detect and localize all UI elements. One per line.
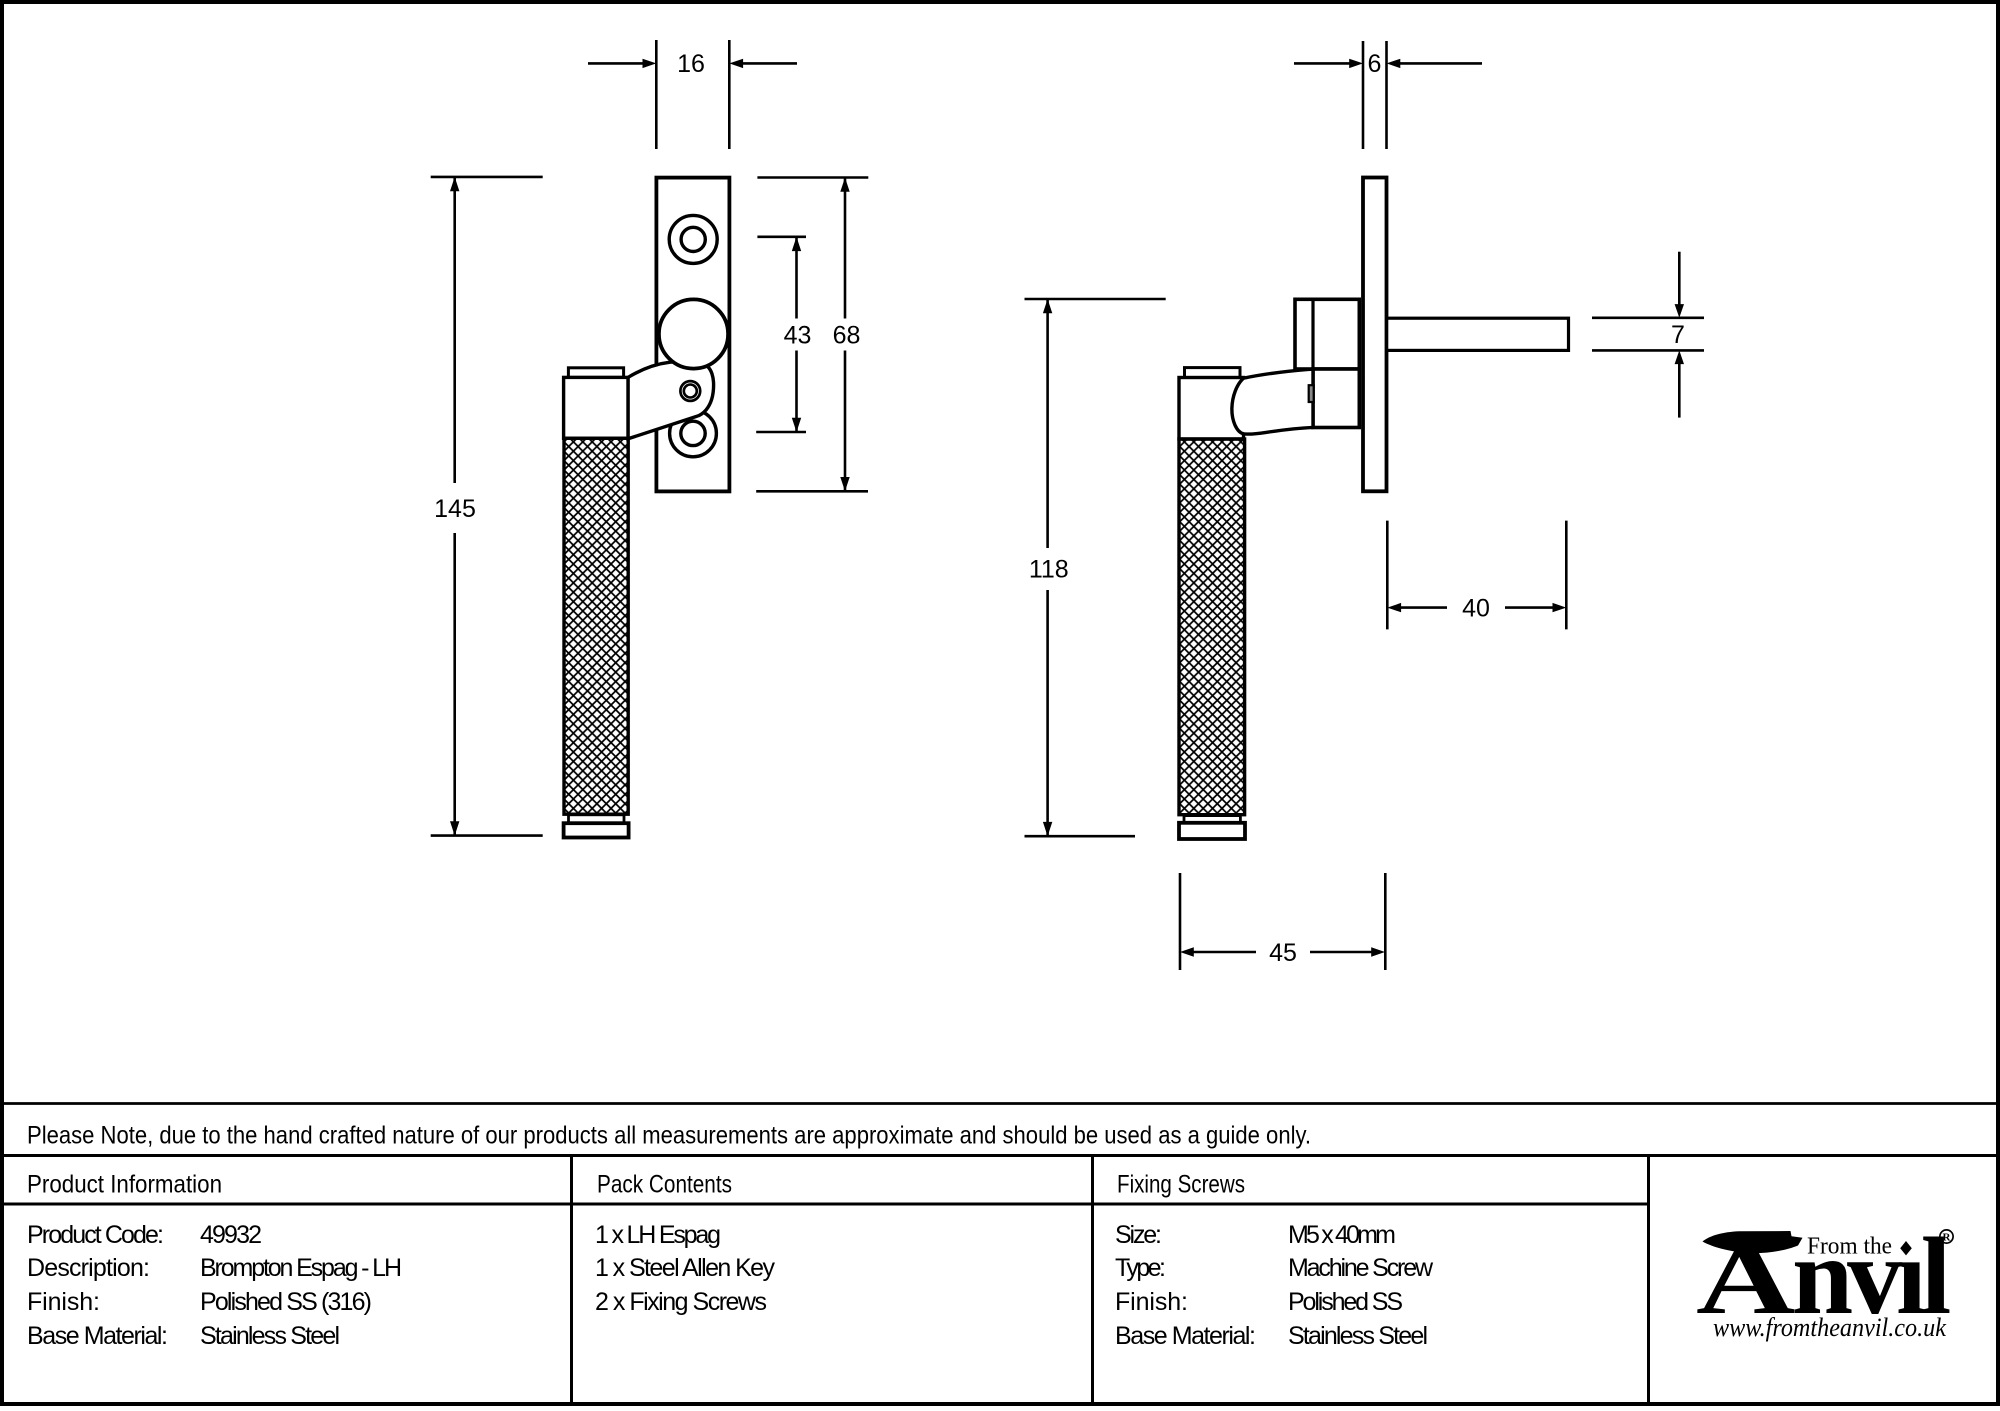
svg-text:2 x Fixing Screws: 2 x Fixing Screws	[595, 1288, 767, 1316]
svg-text:Description:: Description:	[27, 1254, 150, 1282]
svg-text:16: 16	[677, 50, 705, 78]
svg-text:Product Code:: Product Code:	[27, 1221, 164, 1249]
svg-text:Stainless Steel: Stainless Steel	[1288, 1322, 1428, 1350]
svg-text:www.fromtheanvil.co.uk: www.fromtheanvil.co.uk	[1713, 1313, 1946, 1342]
svg-text:Please Note, due to the hand c: Please Note, due to the hand crafted nat…	[27, 1122, 1311, 1150]
svg-text:45: 45	[1269, 939, 1297, 967]
svg-text:Base Material:: Base Material:	[1115, 1322, 1256, 1350]
svg-text:Polished SS (316): Polished SS (316)	[200, 1288, 372, 1316]
svg-text:Machine Screw: Machine Screw	[1288, 1254, 1434, 1282]
svg-text:1 x LH Espag: 1 x LH Espag	[595, 1221, 721, 1249]
svg-text:6: 6	[1368, 50, 1382, 78]
svg-text:Base Material:: Base Material:	[27, 1322, 168, 1350]
svg-text:From the: From the	[1807, 1234, 1892, 1260]
svg-text:43: 43	[784, 321, 812, 349]
svg-text:7: 7	[1671, 321, 1685, 349]
svg-text:145: 145	[434, 495, 476, 523]
svg-text:Pack Contents: Pack Contents	[597, 1171, 732, 1199]
svg-text:Fixing Screws: Fixing Screws	[1117, 1171, 1245, 1199]
svg-text:Type:: Type:	[1115, 1254, 1166, 1282]
svg-text:Stainless Steel: Stainless Steel	[200, 1322, 340, 1350]
svg-text:Finish:: Finish:	[1115, 1288, 1188, 1316]
svg-text:118: 118	[1029, 555, 1069, 583]
svg-text:Product Information: Product Information	[27, 1171, 222, 1199]
svg-text:Brompton Espag - LH: Brompton Espag - LH	[200, 1254, 402, 1282]
svg-text:68: 68	[833, 321, 861, 349]
svg-text:1 x Steel Allen Key: 1 x Steel Allen Key	[595, 1254, 776, 1282]
svg-text:R: R	[1943, 1232, 1952, 1244]
svg-text:Size:: Size:	[1115, 1221, 1162, 1249]
svg-text:Polished SS: Polished SS	[1288, 1288, 1403, 1316]
svg-text:49932: 49932	[200, 1221, 262, 1249]
svg-text:40: 40	[1462, 594, 1490, 622]
svg-text:M5 x 40mm: M5 x 40mm	[1288, 1221, 1396, 1249]
svg-text:Finish:: Finish:	[27, 1288, 100, 1316]
